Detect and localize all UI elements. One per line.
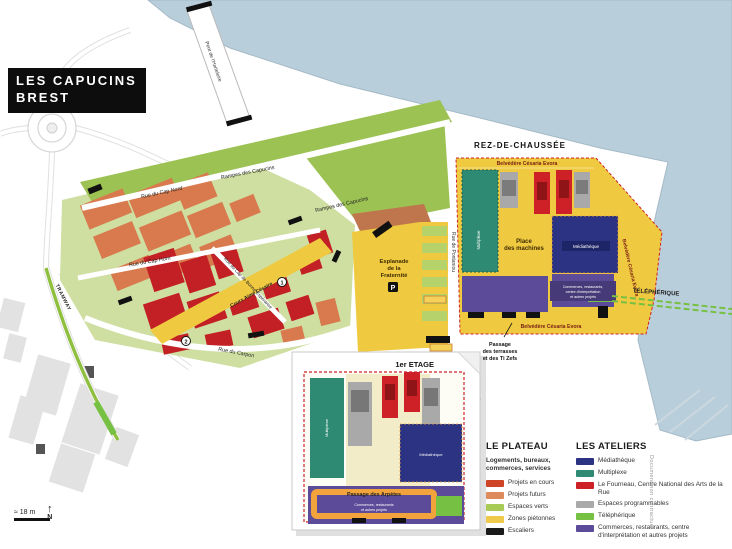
building-label-multiplexe: Multiplexe <box>476 230 481 250</box>
floor-title-rdc: REZ-DE-CHAUSSÉE <box>474 141 566 150</box>
legend-label: Médiathèque <box>598 457 635 465</box>
place-des-machines-label-1: Place <box>516 239 532 245</box>
legend-label: Téléphérique <box>598 512 635 520</box>
place-des-machines-label-2: des machines <box>504 246 544 252</box>
legend-swatch <box>576 513 594 520</box>
inset-label-commerces-2: et autres projets <box>361 508 387 512</box>
belvedere-label-bottom: Belvédère Césaria Evora <box>521 324 582 330</box>
legend-item: Espaces verts <box>486 503 564 511</box>
map-page: Pont de l'Harteloire TRAMWAY Rue Maissin <box>0 0 732 549</box>
ateliers-block: Multiplexe Médiathèque Commerces, restau… <box>456 158 662 334</box>
esplanade-fraternite <box>352 222 452 352</box>
legend-swatch <box>486 504 504 511</box>
multiplexe-building <box>462 170 498 272</box>
legend-swatch <box>486 528 504 535</box>
micro-label-box <box>430 344 452 351</box>
commerces-building <box>462 276 548 312</box>
legend-label: Zones piétonnes <box>508 515 555 523</box>
inset-telepherique <box>436 496 462 516</box>
legend-swatch <box>486 516 504 523</box>
legend-label: Espaces programmables <box>598 500 669 508</box>
micro-label-box <box>424 296 446 303</box>
legend-plateau: LE PLATEAU Logements, bureaux, commerces… <box>486 441 564 544</box>
esplanade-label-1: Esplanade <box>380 259 410 265</box>
marker-number-2: 2 <box>184 340 187 346</box>
legend-swatch <box>576 525 594 532</box>
legend-item: Projets futurs <box>486 491 564 499</box>
legend-ateliers-title: LES ATELIERS <box>576 441 726 452</box>
scale-bar: ≈ 18 m <box>14 509 50 521</box>
inset-label-commerces-1: Commerces, restaurants <box>354 503 394 507</box>
legend-item: Projets en cours <box>486 479 564 487</box>
legend-swatch <box>576 501 594 508</box>
legend-label: Commerces, restaurants, centre d'interpr… <box>598 524 726 539</box>
parking-letter: P <box>391 285 396 292</box>
building-label-mediatheque: Médiathèque <box>573 244 600 249</box>
legend-swatch <box>486 480 504 487</box>
legend-swatch <box>576 470 594 477</box>
esplanade-label-2: de la <box>387 266 401 272</box>
legend-swatch <box>486 492 504 499</box>
esplanade-label-3: Fraternité <box>381 273 409 279</box>
legend-swatch <box>576 458 594 465</box>
north-arrow-icon: ↑ <box>47 504 53 514</box>
belvedere-label-top: Belvédère Césaria Evora <box>497 161 558 167</box>
inset-first-floor: 1er ETAGE Multiplexe Médiathèque Passage… <box>292 352 486 536</box>
legend-item: Escaliers <box>486 527 564 535</box>
street-label-pontaniou: Rue de Pontaniou <box>450 232 456 272</box>
credit-text: Document non contractuel <box>648 455 654 529</box>
inset-label-arpetes: Passage des Arpètes <box>347 492 401 498</box>
building-label-commerces-2: centre d'interprétation <box>566 290 601 294</box>
legend-label: Le Fourneau, Centre National des Arts de… <box>598 481 726 496</box>
legend-item: Zones piétonnes <box>486 515 564 523</box>
marker-number-1: 1 <box>280 281 283 287</box>
building-label-commerces-3: et autres projets <box>570 295 596 299</box>
scale-bar-line <box>14 518 50 521</box>
passage-terrasses-2: des terrasses <box>483 349 518 355</box>
inset-label-multiplexe: Multiplexe <box>324 418 329 437</box>
passage-terrasses-1: Passage <box>489 342 511 348</box>
legend: LE PLATEAU Logements, bureaux, commerces… <box>486 441 726 544</box>
legend-label: Multiplexe <box>598 469 627 477</box>
north-arrow: ↑ N <box>47 504 53 521</box>
legend-label: Projets en cours <box>508 479 554 487</box>
inset-label-mediatheque: Médiathèque <box>419 452 443 457</box>
map-title-line2: BREST <box>16 90 137 107</box>
legend-plateau-subtitle: Logements, bureaux, commerces, services <box>486 457 564 473</box>
legend-label: Projets futurs <box>508 491 546 499</box>
legend-label: Escaliers <box>508 527 534 535</box>
legend-swatch <box>576 482 594 489</box>
legend-plateau-title: LE PLATEAU <box>486 441 564 452</box>
map-title: LES CAPUCINS BREST <box>8 68 146 113</box>
map-title-line1: LES CAPUCINS <box>16 73 137 90</box>
passage-terrasses-3: et des Ti Zefs <box>483 356 517 362</box>
building-label-commerces-1: Commerces, restaurants, <box>563 285 603 289</box>
north-label: N <box>47 514 53 521</box>
legend-label: Espaces verts <box>508 503 548 511</box>
scale-label: ≈ 18 m <box>14 509 50 516</box>
floor-title-etage: 1er ETAGE <box>395 360 434 369</box>
